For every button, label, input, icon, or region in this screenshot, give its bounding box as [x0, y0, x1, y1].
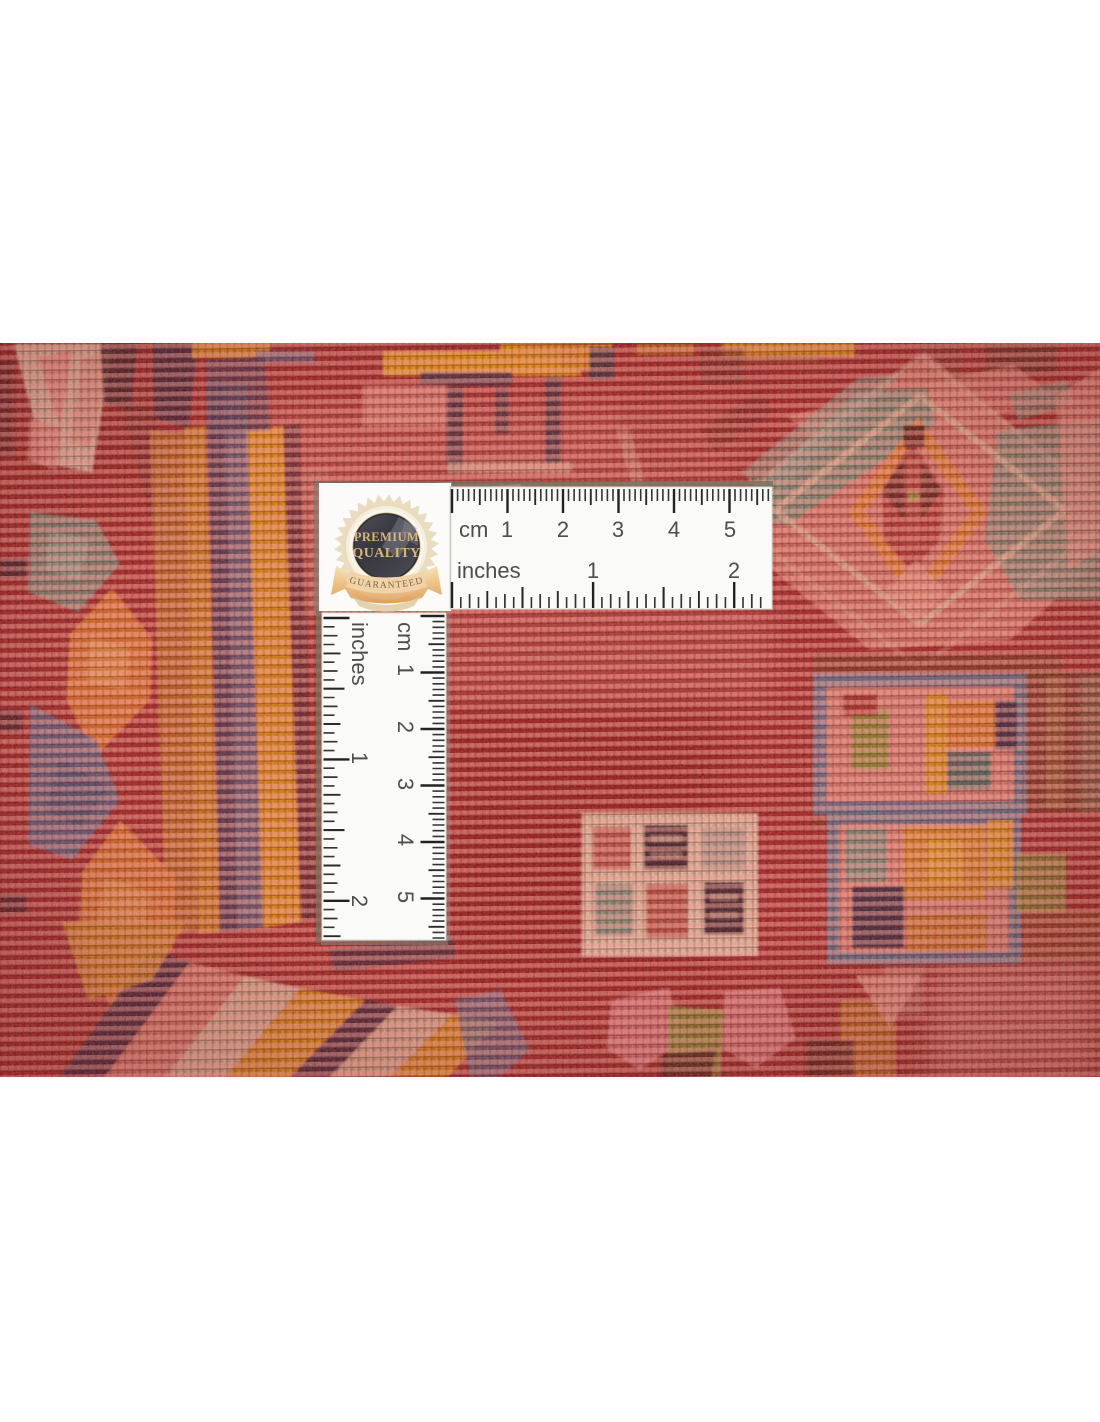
svg-text:3: 3: [612, 517, 624, 542]
svg-text:cm: cm: [393, 622, 418, 651]
svg-text:inches: inches: [347, 622, 372, 686]
svg-text:1: 1: [501, 517, 513, 542]
svg-text:1: 1: [347, 752, 372, 764]
svg-text:5: 5: [724, 517, 736, 542]
svg-text:3: 3: [393, 778, 418, 790]
svg-text:5: 5: [393, 891, 418, 903]
svg-text:1: 1: [393, 664, 418, 676]
svg-text:1: 1: [587, 558, 599, 583]
svg-text:4: 4: [668, 517, 680, 542]
svg-text:cm: cm: [459, 517, 488, 542]
svg-text:inches: inches: [457, 558, 521, 583]
svg-text:2: 2: [393, 721, 418, 733]
svg-text:2: 2: [347, 895, 372, 907]
svg-text:2: 2: [728, 558, 740, 583]
svg-text:2: 2: [557, 517, 569, 542]
svg-text:4: 4: [393, 834, 418, 846]
